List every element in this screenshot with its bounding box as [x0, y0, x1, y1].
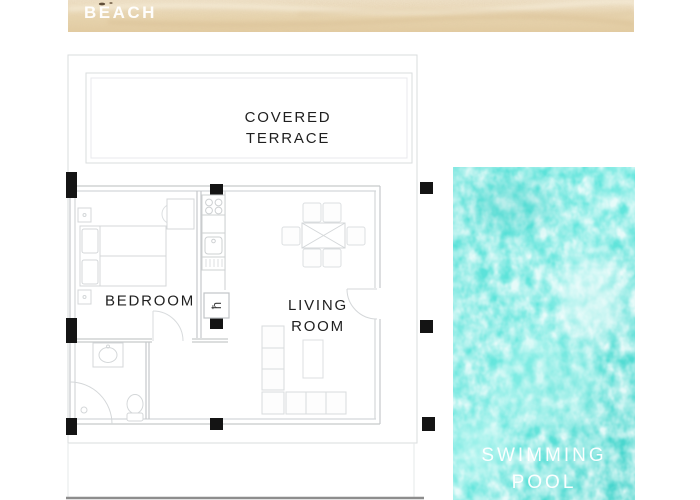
- shower: [70, 382, 112, 424]
- swimming-pool-label: SWIMMING POOL: [453, 442, 635, 497]
- living-room-label: LIVING ROOM: [268, 295, 368, 337]
- floor-plan-page: BEACH: [0, 0, 700, 500]
- toilet: [127, 395, 143, 422]
- bed: [80, 226, 166, 286]
- bathroom-door: [153, 311, 183, 341]
- desk-and-chair: [162, 199, 194, 229]
- coffee-table: [303, 340, 323, 378]
- covered-terrace-label: COVERED TERRACE: [221, 107, 356, 149]
- kitchen-counter: [202, 195, 225, 270]
- swimming-pool-photo: SWIMMING POOL: [453, 167, 635, 500]
- bedroom-label: BEDROOM: [75, 291, 225, 312]
- dining-table: [302, 223, 345, 248]
- bathroom-sink: [93, 343, 123, 367]
